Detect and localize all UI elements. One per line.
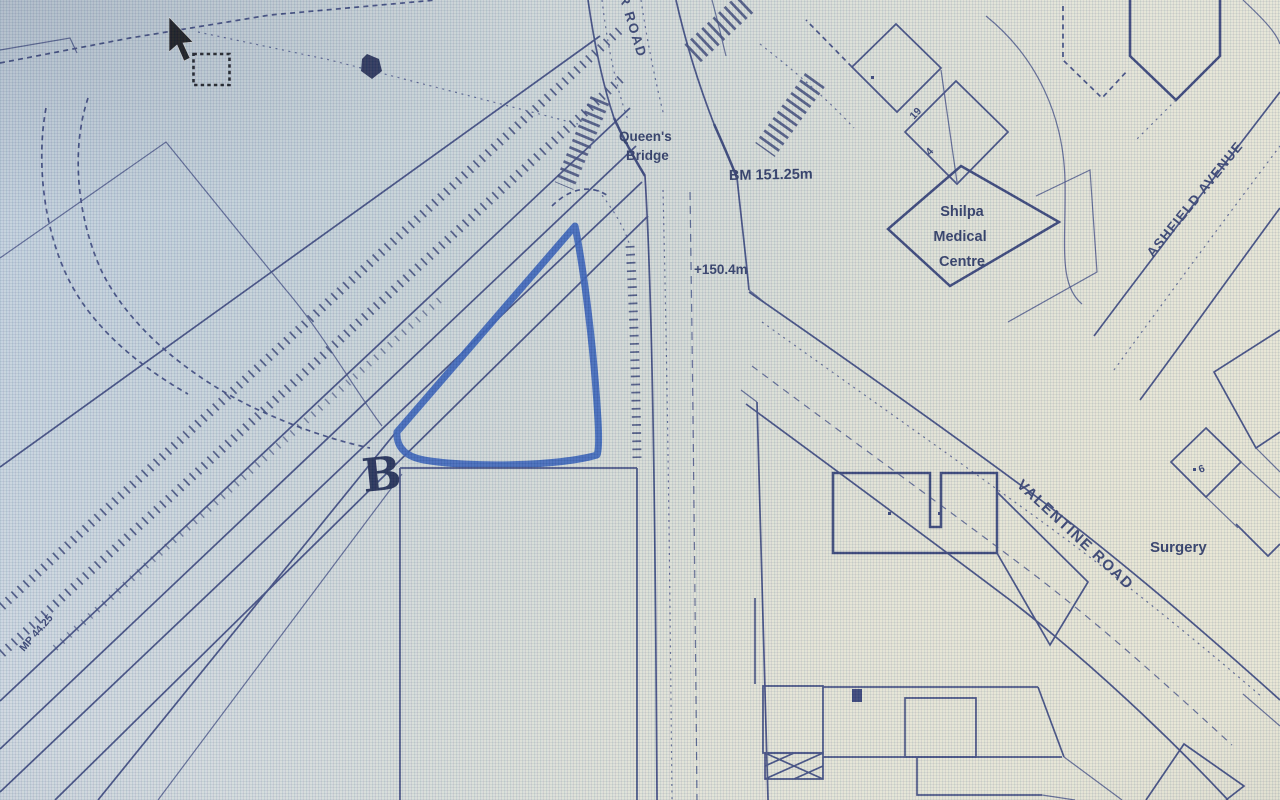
queens-bridge-label: Bridge <box>626 148 669 163</box>
railway-corridor: MP 44.25 <box>0 28 648 800</box>
dashed-selection-box <box>194 54 230 85</box>
site-area: B <box>360 189 637 800</box>
medical-centre-label: Centre <box>939 254 985 270</box>
ashfield-avenue: ASHFIELD AVENUE <box>1094 92 1280 400</box>
medical-centre-buildings: 19 4 Shilpa Medical Centre <box>806 16 1097 322</box>
medical-centre-label: Medical <box>933 229 986 245</box>
valentine-road: VALENTINE ROAD Surgery <box>746 292 1280 800</box>
tree-symbol <box>361 54 382 79</box>
top-right-buildings <box>1063 0 1280 142</box>
ashfield-avenue-label: ASHFIELD AVENUE <box>1144 139 1246 260</box>
benchmark-label: BM 151.25m <box>729 167 813 184</box>
plot-number-4: 4 <box>923 145 936 158</box>
plot-number-6: 6 <box>1197 462 1207 475</box>
site-letter-annotation: B <box>360 445 404 503</box>
parcel-outline <box>400 468 637 800</box>
surgery-label: Surgery <box>1150 539 1207 556</box>
bridge-and-survey-labels: Queen's Bridge BM 151.25m +150.4m ER ROA… <box>613 0 813 277</box>
top-road-label: ER ROAD <box>613 0 650 60</box>
photographed-monitor-screen: MP 44.25 Queen's Bridge BM 151.25m +150.… <box>0 0 1280 800</box>
site-boundary-marker[interactable] <box>397 226 599 465</box>
valentine-road-label: VALENTINE ROAD <box>1013 476 1137 593</box>
field-boundaries-top-left <box>0 0 578 448</box>
spot-height-label: +150.4m <box>694 262 748 277</box>
right-middle-buildings: 6 <box>1171 330 1280 556</box>
queens-bridge-label: Queen's <box>619 129 672 144</box>
map-canvas[interactable]: MP 44.25 Queen's Bridge BM 151.25m +150.… <box>0 0 1280 800</box>
medical-centre-label: Shilpa <box>940 204 984 220</box>
plot-number-19: 19 <box>907 105 924 122</box>
main-road <box>564 0 854 800</box>
arrow-pointer-icon <box>169 17 193 61</box>
